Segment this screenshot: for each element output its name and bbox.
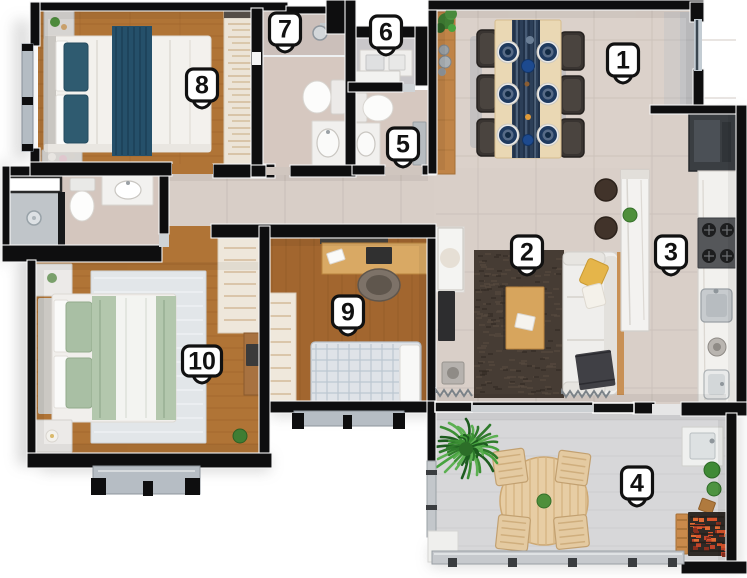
svg-text:10: 10 — [188, 348, 216, 376]
svg-text:8: 8 — [195, 72, 209, 100]
svg-text:2: 2 — [520, 239, 534, 267]
svg-text:6: 6 — [379, 19, 393, 47]
svg-text:7: 7 — [278, 16, 292, 44]
svg-text:3: 3 — [664, 239, 678, 267]
svg-text:1: 1 — [616, 47, 630, 75]
svg-text:5: 5 — [396, 131, 410, 159]
svg-text:4: 4 — [630, 470, 644, 498]
svg-text:9: 9 — [341, 299, 355, 327]
